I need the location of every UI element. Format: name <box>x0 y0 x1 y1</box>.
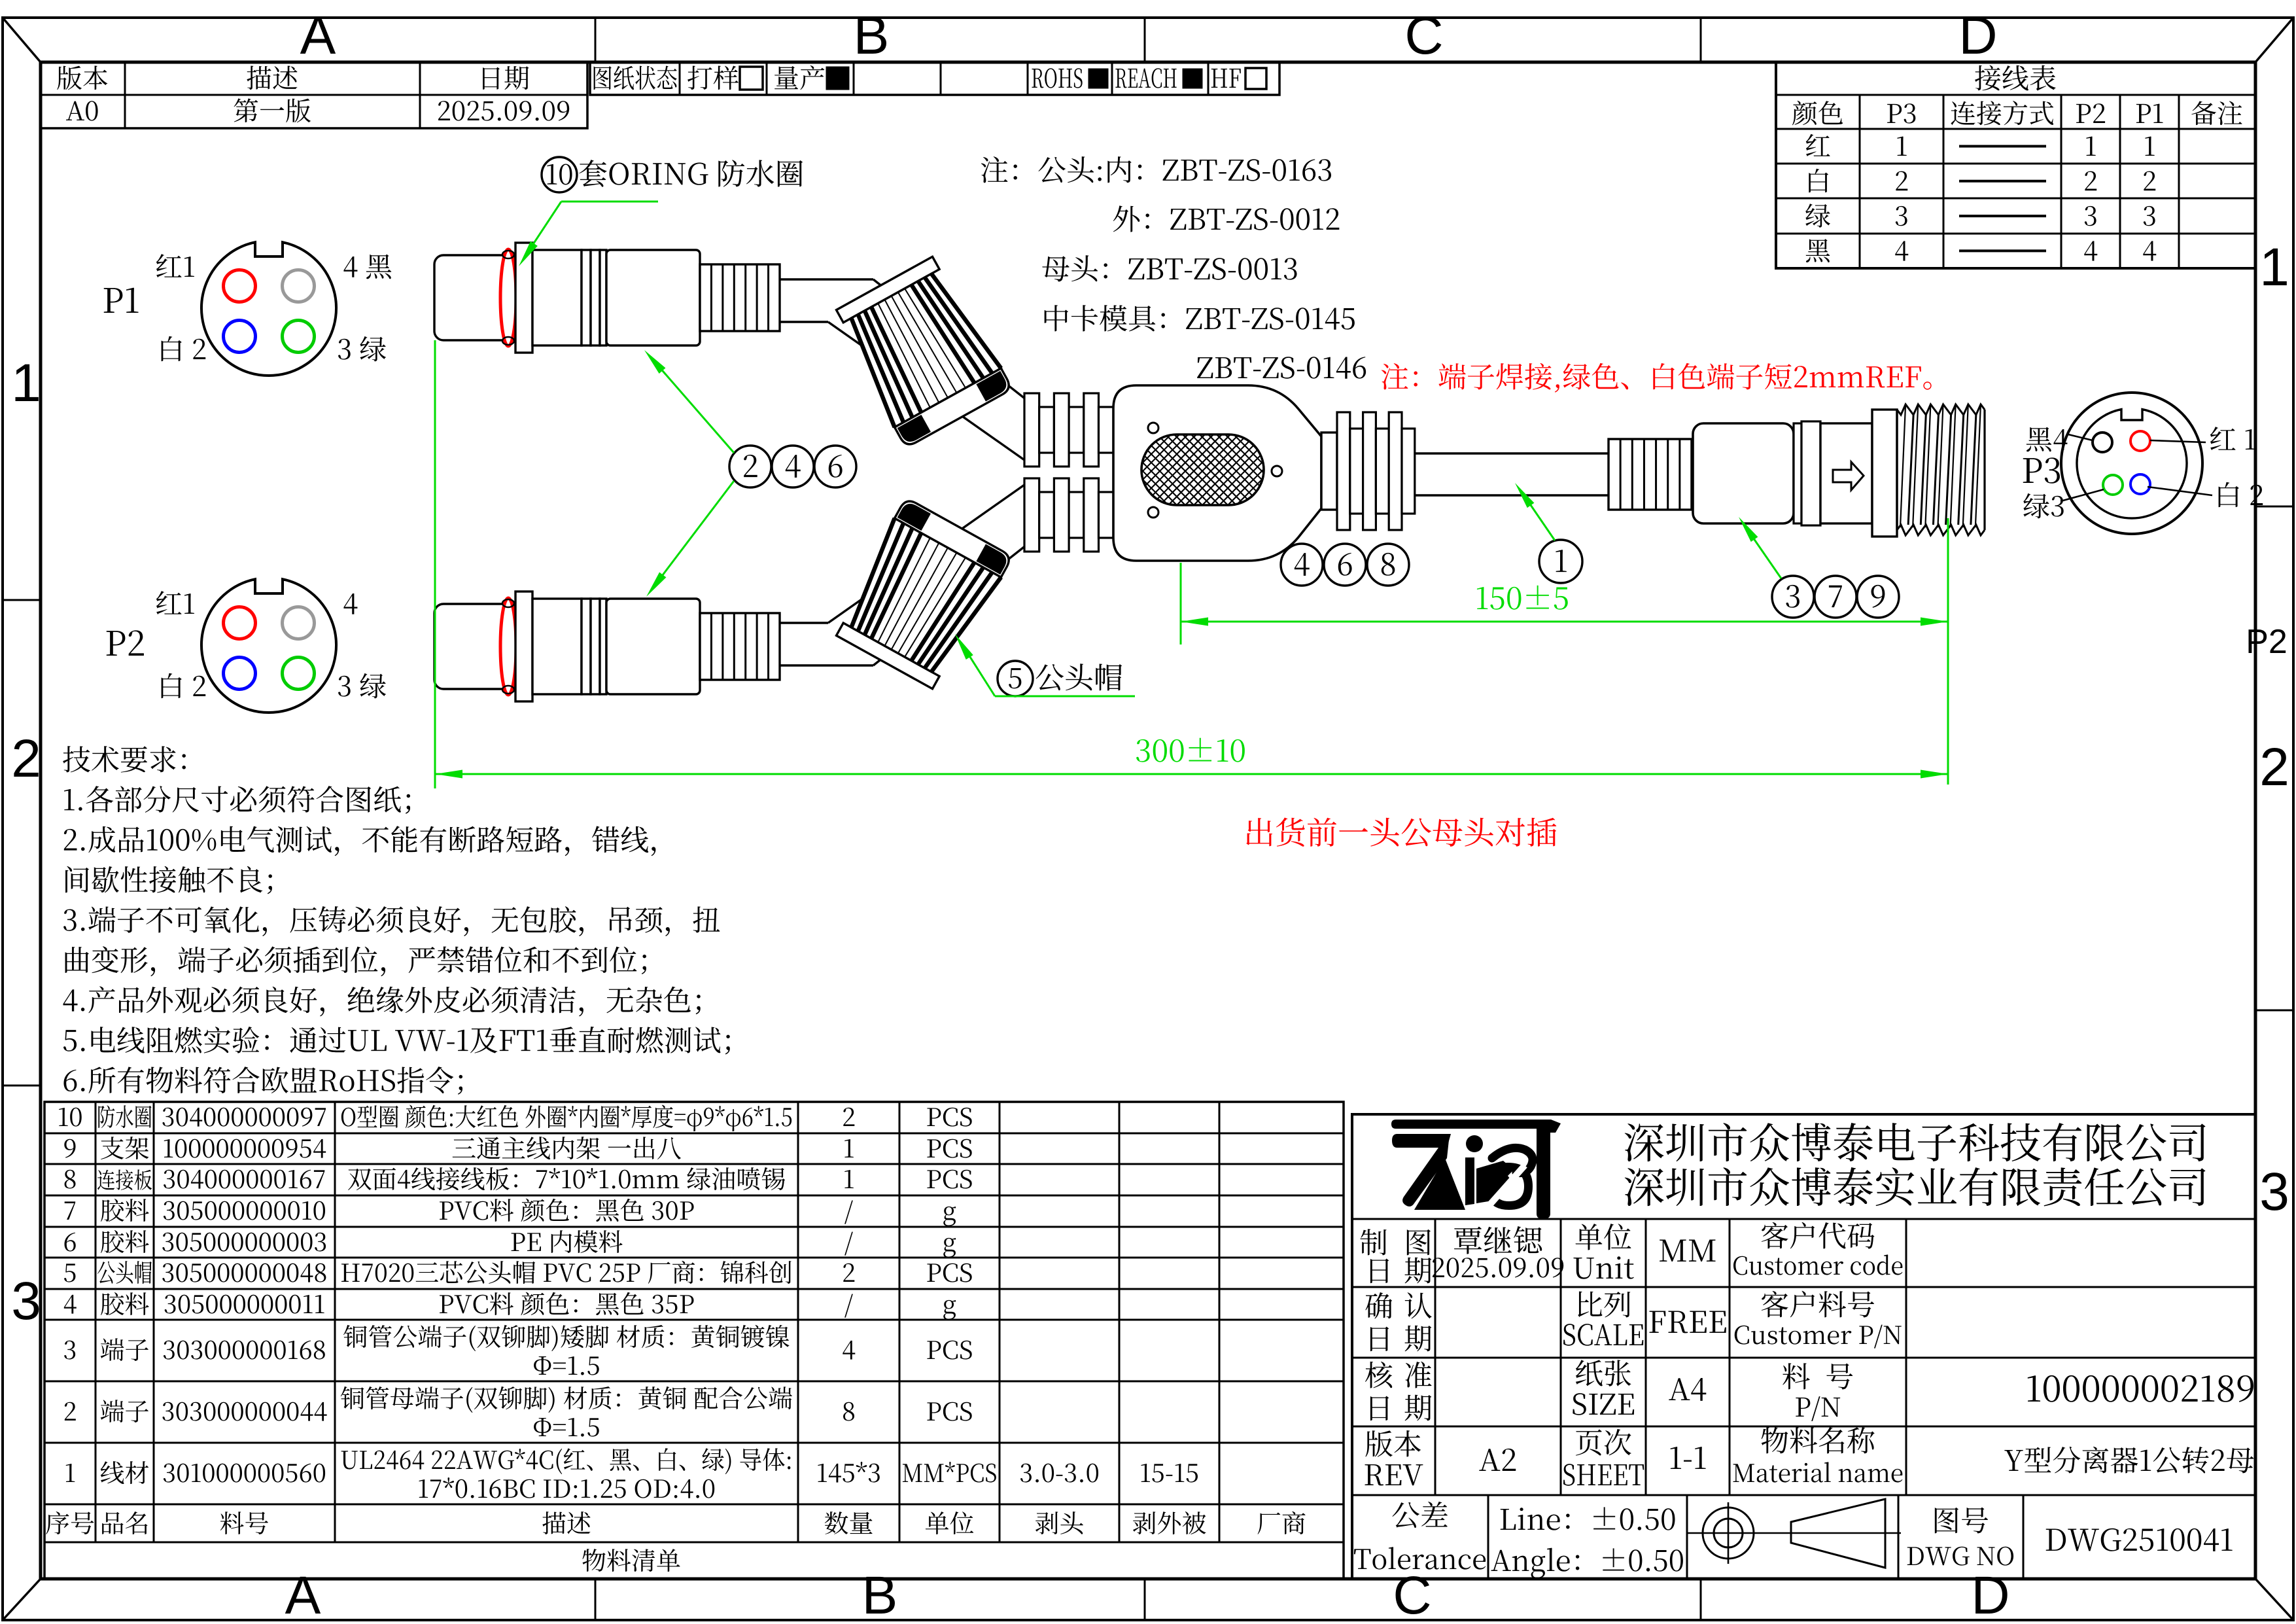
svg-text:A: A <box>300 6 336 65</box>
svg-text:C: C <box>1393 1566 1431 1624</box>
svg-text:D: D <box>1971 1566 2009 1624</box>
svg-text:2: 2 <box>2259 737 2289 797</box>
svg-text:A: A <box>285 1566 321 1624</box>
svg-text:B: B <box>862 1566 898 1624</box>
svg-text:3: 3 <box>2259 1162 2289 1222</box>
svg-text:B: B <box>854 6 890 65</box>
svg-text:3: 3 <box>11 1271 41 1331</box>
svg-text:C: C <box>1404 6 1443 65</box>
svg-text:P2: P2 <box>2246 623 2287 661</box>
svg-text:D: D <box>1958 6 1997 65</box>
svg-text:2: 2 <box>11 729 41 788</box>
svg-text:1: 1 <box>11 353 41 413</box>
svg-text:1: 1 <box>2259 238 2289 297</box>
